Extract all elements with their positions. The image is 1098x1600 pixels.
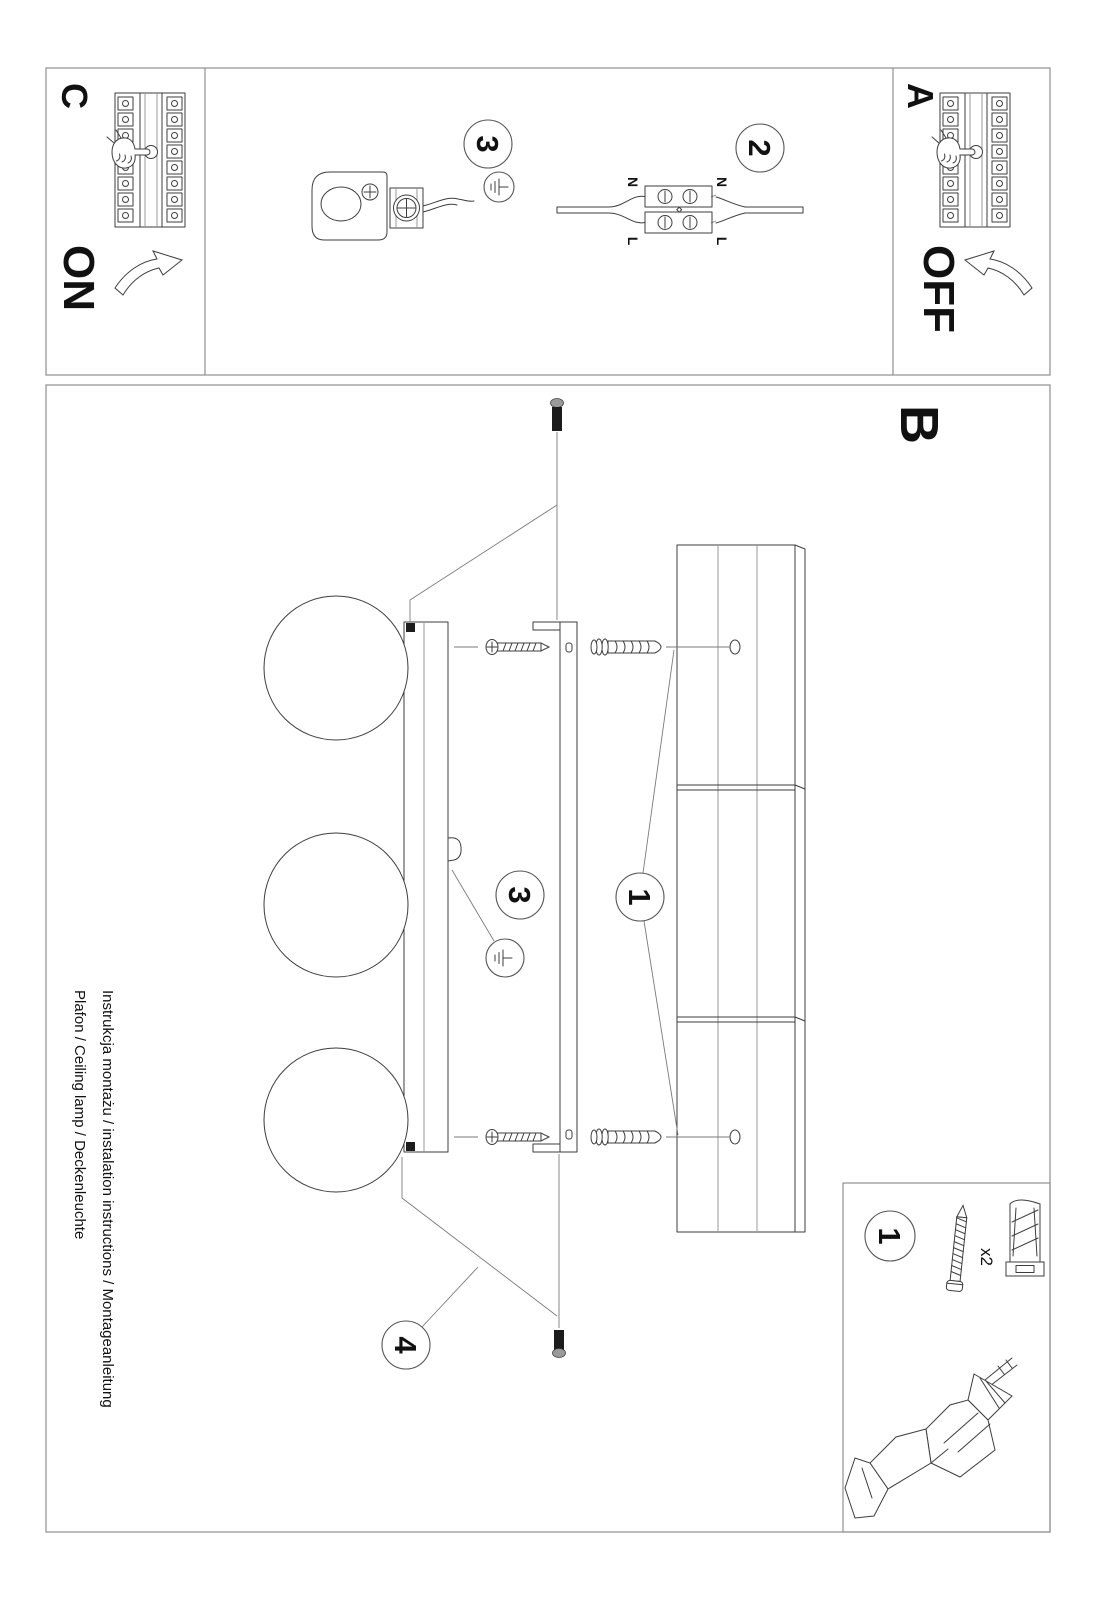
- terminal-block-icon: [645, 186, 712, 233]
- section-c-box: C ON: [54, 83, 185, 311]
- step-3-main-number: 3: [502, 886, 537, 903]
- wall-plug-icon: [591, 1129, 661, 1145]
- lamp-globe: [264, 1048, 408, 1192]
- screw-icon: [486, 640, 549, 655]
- canopy-screw-icon: [553, 1330, 566, 1358]
- label-l-top: L: [714, 237, 730, 246]
- manual-page: A OFF C ON 2: [0, 0, 1098, 1600]
- canopy-cup-icon: [312, 172, 387, 240]
- on-arrow-icon: [115, 251, 182, 295]
- section-c-label: C: [54, 83, 95, 109]
- label-n-top: N: [714, 177, 730, 187]
- lamp-body: [404, 622, 461, 1152]
- lamp-globe: [264, 596, 408, 740]
- quantity-label: x2: [977, 1248, 996, 1266]
- hardware-kit-number: 1: [872, 1227, 907, 1244]
- label-n-bottom: N: [625, 177, 641, 187]
- step-3-number: 3: [470, 135, 505, 152]
- hardware-box: 1 x2: [845, 1200, 1044, 1518]
- off-arrow-icon: [965, 251, 1032, 295]
- step-1-number: 1: [622, 888, 657, 905]
- drill-icon: [845, 1358, 1017, 1518]
- on-text: ON: [54, 245, 103, 311]
- step-4-number: 4: [388, 1336, 423, 1354]
- lamp-globe: [264, 833, 408, 977]
- ground-connection-illustration: 3: [312, 120, 514, 240]
- wall-plug-icon: [591, 639, 661, 655]
- callout-1: 1: [616, 650, 678, 1135]
- section-b: B: [264, 399, 949, 1370]
- title-line-2: Plafon / Ceiling lamp / Deckenleuchte: [71, 990, 88, 1239]
- off-text: OFF: [914, 245, 963, 333]
- document-title: Instrukcja montażu / instalation instruc…: [71, 990, 116, 1408]
- ceiling-panel: [677, 545, 805, 1232]
- screw-icon: [486, 1130, 549, 1145]
- earth-terminal-icon: [390, 188, 423, 228]
- screw-icon: [946, 1205, 971, 1292]
- title-line-1: Instrukcja montażu / instalation instruc…: [99, 990, 116, 1408]
- section-b-label: B: [889, 405, 949, 444]
- section-borders: [46, 68, 1050, 1532]
- section-a-box: A OFF: [900, 83, 1032, 333]
- drill-hole: [730, 640, 740, 654]
- callout-4: 4: [382, 1267, 478, 1369]
- ground-wire-hook: [448, 838, 461, 861]
- step-2-number: 2: [742, 139, 777, 156]
- drill-hole: [730, 1130, 740, 1144]
- canopy-screw-icon: [551, 399, 564, 432]
- callout-3-main: 3: [452, 870, 544, 977]
- label-l-bottom: L: [625, 237, 641, 246]
- instruction-sheet: A OFF C ON 2: [0, 0, 1098, 1600]
- landscape-canvas: A OFF C ON 2: [0, 0, 1098, 1600]
- wall-plug-icon: [1006, 1200, 1044, 1276]
- wiring-illustration: 2 N L N L: [557, 124, 803, 246]
- section-a-label: A: [900, 83, 941, 109]
